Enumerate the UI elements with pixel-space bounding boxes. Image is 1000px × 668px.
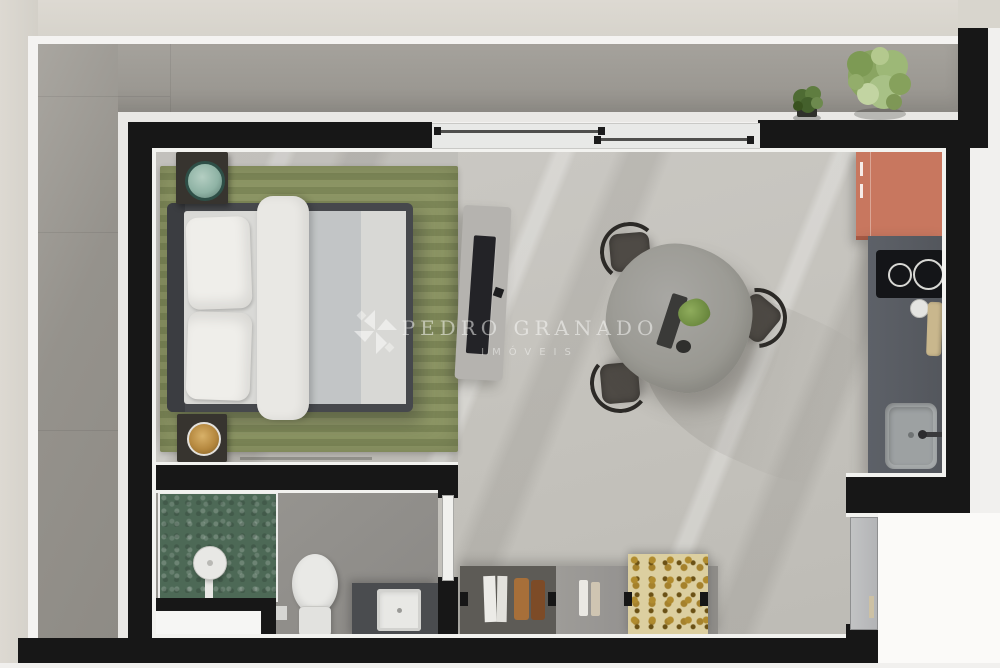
decor-art-panel xyxy=(628,554,708,636)
decor-books xyxy=(483,576,497,622)
nightstand-plant xyxy=(185,161,225,201)
wall-face-line xyxy=(156,462,458,465)
decor-mini-vase xyxy=(579,580,588,616)
window-stop xyxy=(598,127,605,135)
wall-top-left xyxy=(128,122,432,148)
outside-bottom-strip xyxy=(0,663,1000,668)
wall-left xyxy=(128,122,152,663)
wall-bottom xyxy=(18,638,878,663)
window-track-right xyxy=(600,138,754,141)
table-bowl xyxy=(676,340,691,353)
wall-bathroom-top xyxy=(152,465,458,490)
wall-right xyxy=(946,148,970,477)
terrace-seam xyxy=(38,430,118,431)
shower-head xyxy=(193,546,227,580)
wall-kitchen-bottom xyxy=(846,477,970,513)
wall-bathroom-right-lower xyxy=(438,577,458,638)
terrace-seam xyxy=(170,44,171,112)
watermark-tagline: IMÓVEIS xyxy=(400,347,660,358)
terrace-floor-left xyxy=(38,44,118,638)
wall-face-line xyxy=(152,148,156,638)
wall-face-line xyxy=(156,490,438,493)
bathroom-door-leaf xyxy=(442,495,454,581)
toilet-bowl xyxy=(292,554,338,614)
shower-head-center xyxy=(207,560,213,566)
outer-frame-top-line xyxy=(28,36,958,44)
outer-frame-left-line xyxy=(28,36,38,663)
wall-face-line xyxy=(846,473,946,477)
fridge-handle xyxy=(860,184,863,198)
wall-top-right xyxy=(758,120,988,148)
window-stop xyxy=(434,127,441,135)
toilet-tank xyxy=(299,606,331,637)
wall-face-line xyxy=(156,634,846,638)
large-plant xyxy=(834,34,924,122)
kitchen-sink xyxy=(885,403,937,469)
watermark-brand: PEDRO GRANADO xyxy=(400,316,660,340)
small-plant xyxy=(784,78,830,122)
terrace-seam xyxy=(38,232,118,233)
burner-small xyxy=(888,263,912,287)
outside-bottom-right xyxy=(876,513,1000,668)
fridge-divider xyxy=(870,150,871,236)
prep-bowl xyxy=(910,299,929,318)
kitchen-fridge-counter xyxy=(856,150,946,240)
sideboard-handle xyxy=(548,592,556,606)
bed-headboard xyxy=(167,203,185,412)
window-stop xyxy=(594,136,601,144)
bedroom-baseboard-shadow xyxy=(240,457,372,460)
decor-bowl xyxy=(187,422,221,456)
cooktop xyxy=(876,250,944,298)
entrance-door-handle xyxy=(869,596,874,618)
entrance-door xyxy=(850,517,878,630)
bed-pillow xyxy=(185,311,252,401)
floor-plan: PEDRO GRANADO IMÓVEIS xyxy=(0,0,1000,668)
outer-top-right-corner xyxy=(958,0,1000,28)
sideboard-handle xyxy=(624,592,632,606)
wall-balcony-right xyxy=(958,28,988,122)
sink-drain xyxy=(908,432,914,438)
bed-pillow xyxy=(185,216,252,310)
brand-logo-icon xyxy=(352,306,399,358)
fridge-handle xyxy=(860,162,863,176)
window-stop xyxy=(747,136,754,144)
sideboard-handle xyxy=(460,592,468,606)
window-track-left xyxy=(438,130,604,133)
faucet-knob xyxy=(918,430,927,439)
terrace-curb-vertical xyxy=(118,112,128,638)
wall-face-line xyxy=(942,152,946,477)
vanity-drain xyxy=(397,608,402,613)
bed-runner-blanket xyxy=(257,196,309,420)
terrace-seam xyxy=(38,96,170,97)
decor-mini-vase xyxy=(591,582,600,616)
decor-bottle-brown xyxy=(531,580,545,620)
decor-bottle-amber xyxy=(514,578,529,620)
burner-large xyxy=(913,259,944,290)
sideboard-handle xyxy=(700,592,708,606)
decor-books xyxy=(497,576,508,622)
sliding-window xyxy=(432,123,760,149)
vanity-counter xyxy=(352,583,438,638)
cutting-board xyxy=(926,302,943,356)
